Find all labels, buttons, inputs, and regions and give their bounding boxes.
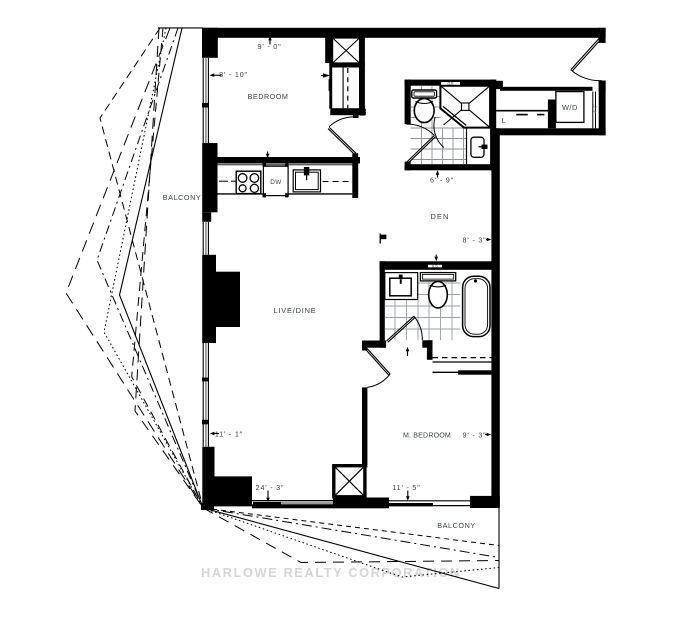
svg-text:BALCONY: BALCONY xyxy=(437,521,476,530)
svg-text:L: L xyxy=(501,116,505,125)
svg-text:6' - 9": 6' - 9" xyxy=(430,175,454,184)
svg-text:BALCONY: BALCONY xyxy=(163,193,202,202)
svg-text:LIVE/DINE: LIVE/DINE xyxy=(274,306,317,315)
svg-text:BEDROOM: BEDROOM xyxy=(248,92,289,101)
svg-text:8' - 3": 8' - 3" xyxy=(463,235,487,244)
svg-text:9' - 3": 9' - 3" xyxy=(463,430,487,439)
svg-text:M. BEDROOM: M. BEDROOM xyxy=(403,431,451,439)
svg-text:0.5: 0.5 xyxy=(432,264,439,269)
svg-text:11' - 1": 11' - 1" xyxy=(215,429,243,438)
svg-text:DW: DW xyxy=(270,179,282,186)
svg-text:DEN: DEN xyxy=(431,212,450,221)
svg-text:4'-2": 4'-2" xyxy=(593,104,598,114)
svg-text:24' - 3": 24' - 3" xyxy=(256,483,285,492)
svg-text:W/D: W/D xyxy=(562,103,578,112)
svg-text:11' - 5": 11' - 5" xyxy=(392,483,420,492)
svg-text:0.5: 0.5 xyxy=(447,81,454,86)
svg-text:8' - 10": 8' - 10" xyxy=(219,70,248,79)
